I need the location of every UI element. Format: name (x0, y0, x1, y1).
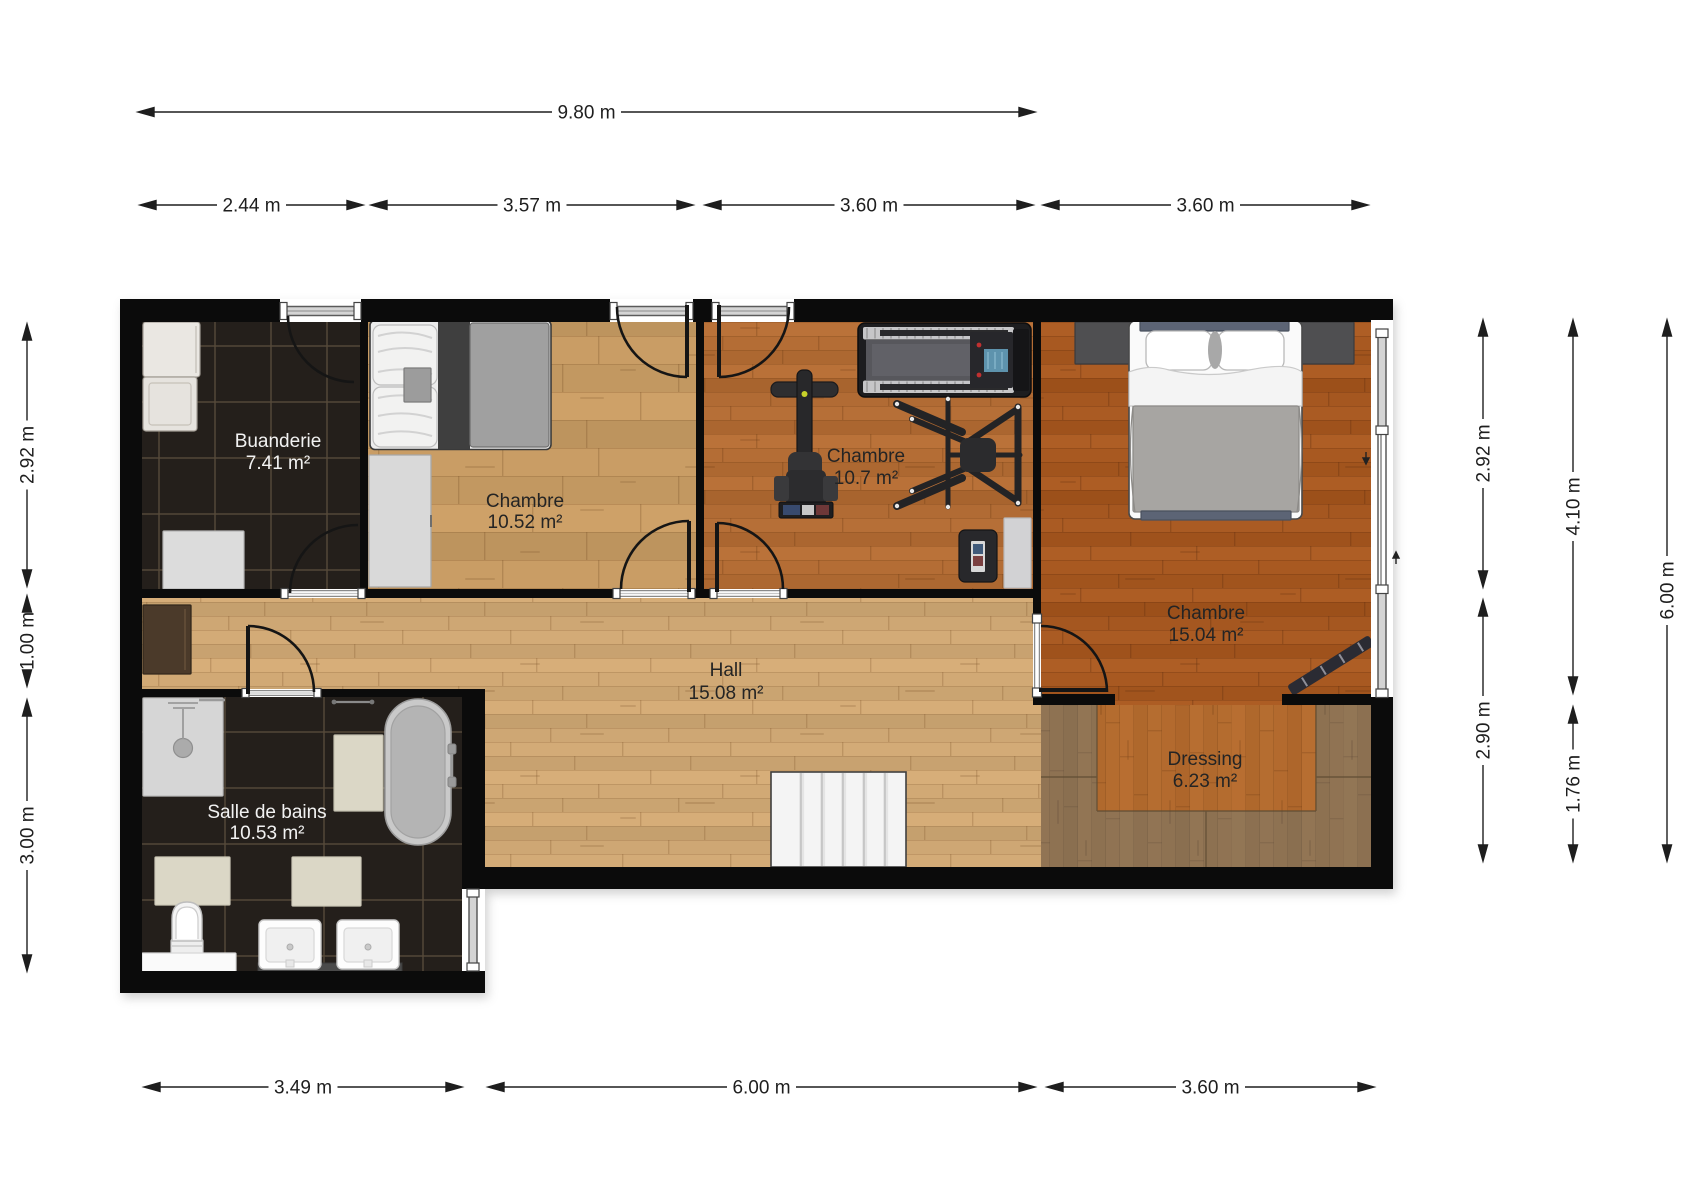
svg-text:Chambre: Chambre (486, 491, 564, 512)
svg-text:2.92 m: 2.92 m (18, 426, 39, 484)
svg-text:15.08 m²: 15.08 m² (689, 683, 764, 704)
svg-text:Chambre: Chambre (827, 446, 905, 467)
svg-text:2.92 m: 2.92 m (1474, 424, 1495, 482)
svg-text:6.00 m: 6.00 m (732, 1078, 790, 1099)
svg-text:Hall: Hall (710, 660, 743, 681)
svg-text:3.00 m: 3.00 m (18, 806, 39, 864)
svg-text:Dressing: Dressing (1168, 749, 1243, 770)
svg-text:10.52 m²: 10.52 m² (488, 512, 563, 533)
svg-text:3.60 m: 3.60 m (1181, 1078, 1239, 1099)
svg-text:Buanderie: Buanderie (235, 431, 322, 452)
svg-text:10.53 m²: 10.53 m² (230, 823, 305, 844)
svg-text:10.7 m²: 10.7 m² (834, 468, 898, 489)
svg-text:3.60 m: 3.60 m (840, 196, 898, 217)
svg-text:3.60 m: 3.60 m (1176, 196, 1234, 217)
svg-text:Salle de bains: Salle de bains (207, 802, 326, 823)
svg-text:1.00 m: 1.00 m (18, 612, 39, 670)
svg-text:7.41 m²: 7.41 m² (246, 453, 310, 474)
svg-text:3.49 m: 3.49 m (274, 1078, 332, 1099)
svg-text:1.76 m: 1.76 m (1564, 755, 1585, 813)
svg-text:4.10 m: 4.10 m (1564, 477, 1585, 535)
svg-text:3.57 m: 3.57 m (503, 196, 561, 217)
svg-text:9.80 m: 9.80 m (557, 103, 615, 124)
svg-text:6.23 m²: 6.23 m² (1173, 771, 1237, 792)
svg-text:2.90 m: 2.90 m (1474, 701, 1495, 759)
svg-text:6.00 m: 6.00 m (1658, 561, 1679, 619)
svg-text:15.04 m²: 15.04 m² (1169, 625, 1244, 646)
svg-text:Chambre: Chambre (1167, 603, 1245, 624)
svg-text:2.44 m: 2.44 m (222, 196, 280, 217)
